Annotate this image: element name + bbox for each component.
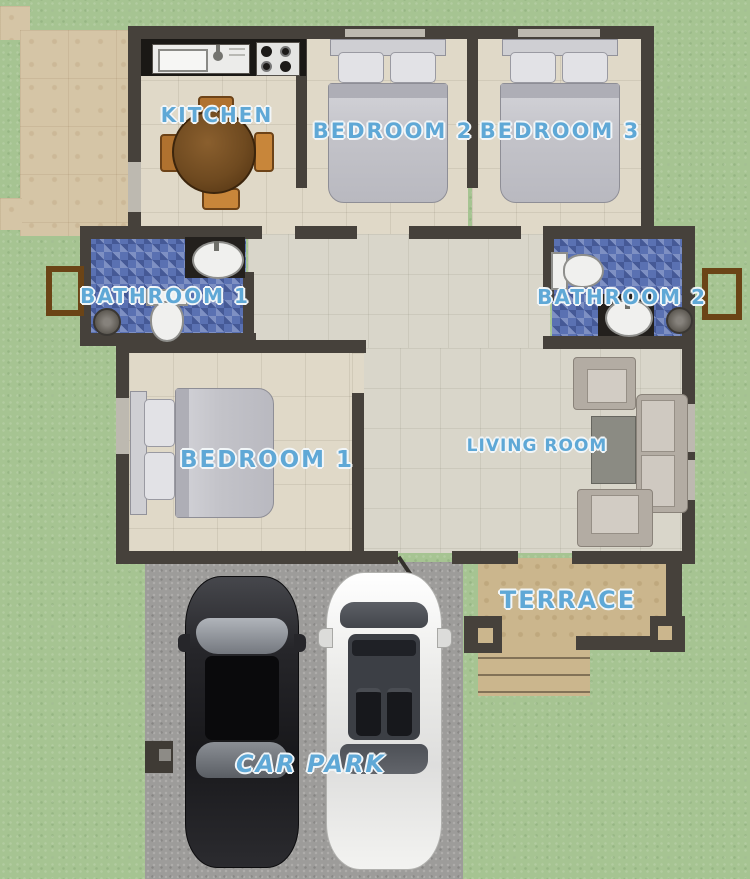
pillow xyxy=(562,52,608,83)
terrace-pillar xyxy=(650,616,685,652)
wall-segment xyxy=(116,340,366,353)
window-opening xyxy=(116,398,129,454)
window-opening xyxy=(345,29,425,37)
shower-head-icon xyxy=(666,307,693,334)
terrace-label: TERRACE xyxy=(500,586,636,614)
pillow xyxy=(144,399,175,447)
bathroom2-window-bump xyxy=(702,268,742,320)
duvet xyxy=(500,83,620,203)
window-opening xyxy=(128,162,141,212)
hallway-floor xyxy=(248,234,550,348)
car-mirror xyxy=(437,628,452,648)
car-roof xyxy=(205,656,279,740)
wall-segment xyxy=(452,551,518,564)
white-car xyxy=(326,572,442,870)
car-mirror xyxy=(178,634,190,652)
stove-icon xyxy=(256,42,300,76)
wall-segment xyxy=(295,226,357,239)
shower-head-icon xyxy=(93,308,121,336)
bedroom1-door-floor xyxy=(352,353,364,393)
pillow xyxy=(510,52,556,83)
bathroom2-label: BATHROOM 2 xyxy=(537,285,707,309)
bedroom2-label: BEDROOM 2 xyxy=(313,119,473,143)
wall-segment xyxy=(543,226,693,239)
car-park-label: CAR PARK xyxy=(236,750,386,778)
window-opening xyxy=(518,29,600,37)
car-windshield xyxy=(196,618,288,654)
car-mirror xyxy=(294,634,306,652)
floor-plan: KITCHEN BEDROOM 2 BEDROOM 3 BATHROOM 1 B… xyxy=(0,0,750,879)
pillow xyxy=(144,452,175,500)
car-windshield xyxy=(340,602,428,628)
dining-chair-icon xyxy=(254,132,274,172)
terrace-pillar xyxy=(464,616,502,653)
car-mirror xyxy=(318,628,333,648)
bedroom3-label: BEDROOM 3 xyxy=(480,119,640,143)
living-room-label: LIVING ROOM xyxy=(467,436,608,456)
patio-edge-patch xyxy=(0,198,22,230)
armchair-icon xyxy=(573,357,636,410)
kitchen-counter xyxy=(141,39,306,76)
wall-segment xyxy=(352,393,364,553)
wall-segment xyxy=(467,38,478,188)
bathroom1-window-bump xyxy=(46,266,84,316)
kitchen-sink-icon xyxy=(152,44,250,74)
bathroom1-label: BATHROOM 1 xyxy=(80,284,250,308)
toilet-icon xyxy=(551,250,603,288)
wall-segment xyxy=(409,226,521,239)
wall-segment xyxy=(116,551,366,564)
duvet xyxy=(328,83,448,203)
wall-segment xyxy=(543,336,693,349)
wall-segment xyxy=(130,26,310,39)
pillow xyxy=(338,52,384,83)
wall-segment xyxy=(641,38,654,226)
fence-post xyxy=(145,741,173,773)
car-roof-glass xyxy=(348,634,420,740)
washbasin-icon xyxy=(192,241,244,279)
car-seat xyxy=(387,688,412,736)
side-patio xyxy=(20,30,136,236)
car-seat xyxy=(356,688,381,736)
armchair-icon xyxy=(577,489,653,547)
pillow xyxy=(390,52,436,83)
kitchen-label: KITCHEN xyxy=(161,103,273,127)
bedroom1-label: BEDROOM 1 xyxy=(180,447,354,473)
black-car xyxy=(185,576,299,868)
